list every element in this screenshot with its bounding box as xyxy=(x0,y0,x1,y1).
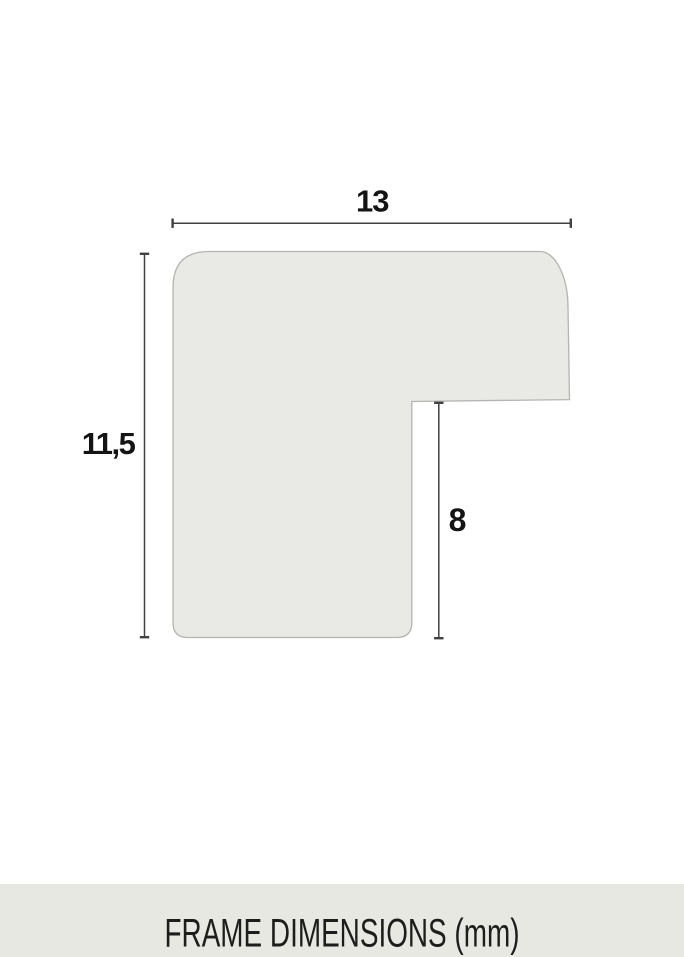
svg-text:FRAME DIMENSIONS (mm): FRAME DIMENSIONS (mm) xyxy=(165,912,520,956)
svg-text:13: 13 xyxy=(356,184,389,219)
svg-text:8: 8 xyxy=(449,502,467,538)
svg-text:11,5: 11,5 xyxy=(82,426,136,461)
